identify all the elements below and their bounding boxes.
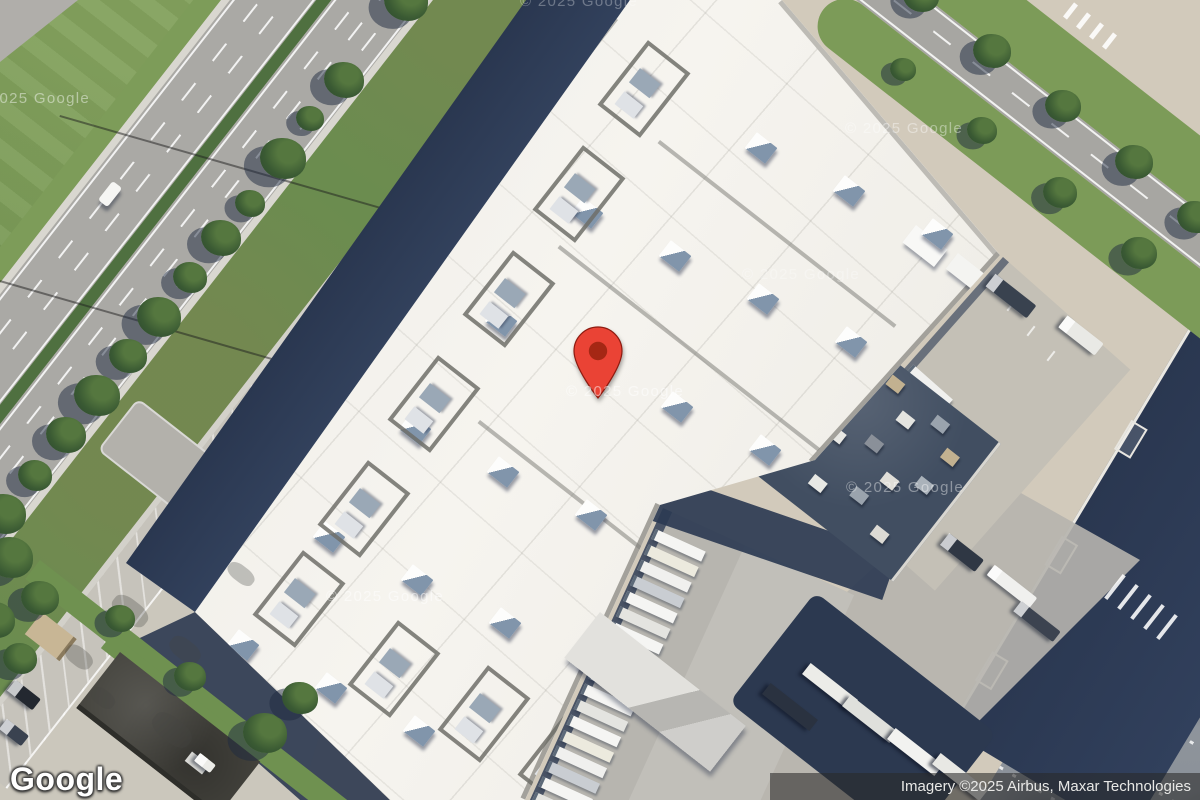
tree bbox=[18, 460, 52, 491]
tree bbox=[201, 220, 241, 256]
rooftop-hvac-assembly bbox=[462, 250, 555, 348]
rooftop-hvac-assembly bbox=[597, 40, 690, 138]
tree bbox=[1121, 237, 1157, 269]
tree bbox=[282, 682, 318, 714]
rooftop-hvac-unit bbox=[835, 326, 868, 358]
tree bbox=[74, 375, 120, 416]
rooftop-hvac-unit bbox=[745, 132, 778, 164]
rooftop-equipment bbox=[870, 525, 890, 544]
tree bbox=[890, 58, 916, 81]
rooftop-hvac-unit bbox=[403, 715, 436, 747]
rooftop-hvac-unit bbox=[487, 456, 520, 488]
watermark: © 2025 Google bbox=[0, 90, 90, 107]
rooftop-hvac-assembly bbox=[387, 355, 480, 453]
rooftop-equipment bbox=[895, 410, 915, 429]
tree bbox=[1043, 177, 1077, 208]
tree bbox=[296, 106, 324, 131]
rooftop-equipment bbox=[940, 448, 960, 467]
rooftop-equipment bbox=[864, 434, 884, 453]
tree bbox=[1115, 145, 1153, 179]
rooftop-equipment bbox=[808, 474, 828, 493]
tree bbox=[1045, 90, 1081, 122]
tree bbox=[105, 605, 135, 632]
rooftop-equipment bbox=[930, 415, 950, 434]
tree bbox=[173, 262, 207, 293]
rooftop-hvac-unit bbox=[747, 283, 780, 315]
tree bbox=[3, 643, 37, 674]
google-logo[interactable]: Google bbox=[10, 761, 123, 798]
watermark: © 2025 Google bbox=[742, 266, 860, 283]
tree bbox=[174, 662, 206, 691]
rooftop-hvac-unit bbox=[575, 499, 608, 531]
watermark: © 2025 Google bbox=[520, 0, 638, 10]
tree bbox=[260, 138, 306, 179]
watermark: © 2025 Google bbox=[326, 588, 444, 605]
tree bbox=[21, 581, 59, 615]
marker-dot bbox=[589, 342, 607, 360]
watermark: © 2025 Google bbox=[845, 120, 963, 137]
rooftop-hvac-unit bbox=[749, 434, 782, 466]
rooftop-hvac-unit bbox=[659, 240, 692, 272]
tree bbox=[137, 297, 181, 337]
rooftop-hvac-assembly bbox=[532, 145, 625, 243]
rooftop-hvac-unit bbox=[315, 672, 348, 704]
tree bbox=[973, 34, 1011, 68]
attribution-text: Imagery ©2025 Airbus, Maxar Technologies bbox=[901, 778, 1191, 795]
tree bbox=[243, 713, 287, 753]
rooftop-hvac-assembly bbox=[437, 665, 530, 763]
watermark: © 2025 Google bbox=[846, 479, 964, 496]
tree bbox=[109, 339, 147, 373]
attribution-bar: Imagery ©2025 Airbus, Maxar Technologies bbox=[770, 773, 1200, 800]
rooftop-hvac-unit bbox=[489, 607, 522, 639]
tree bbox=[46, 417, 86, 453]
tree bbox=[967, 117, 997, 144]
rooftop-hvac-assembly bbox=[347, 620, 440, 718]
rooftop-hvac-unit bbox=[833, 175, 866, 207]
satellite-map[interactable]: © 2025 Google © 2025 Google © 2025 Googl… bbox=[0, 0, 1200, 800]
tree bbox=[324, 62, 364, 98]
tree bbox=[235, 190, 265, 217]
watermark: © 2025 Google bbox=[566, 383, 684, 400]
